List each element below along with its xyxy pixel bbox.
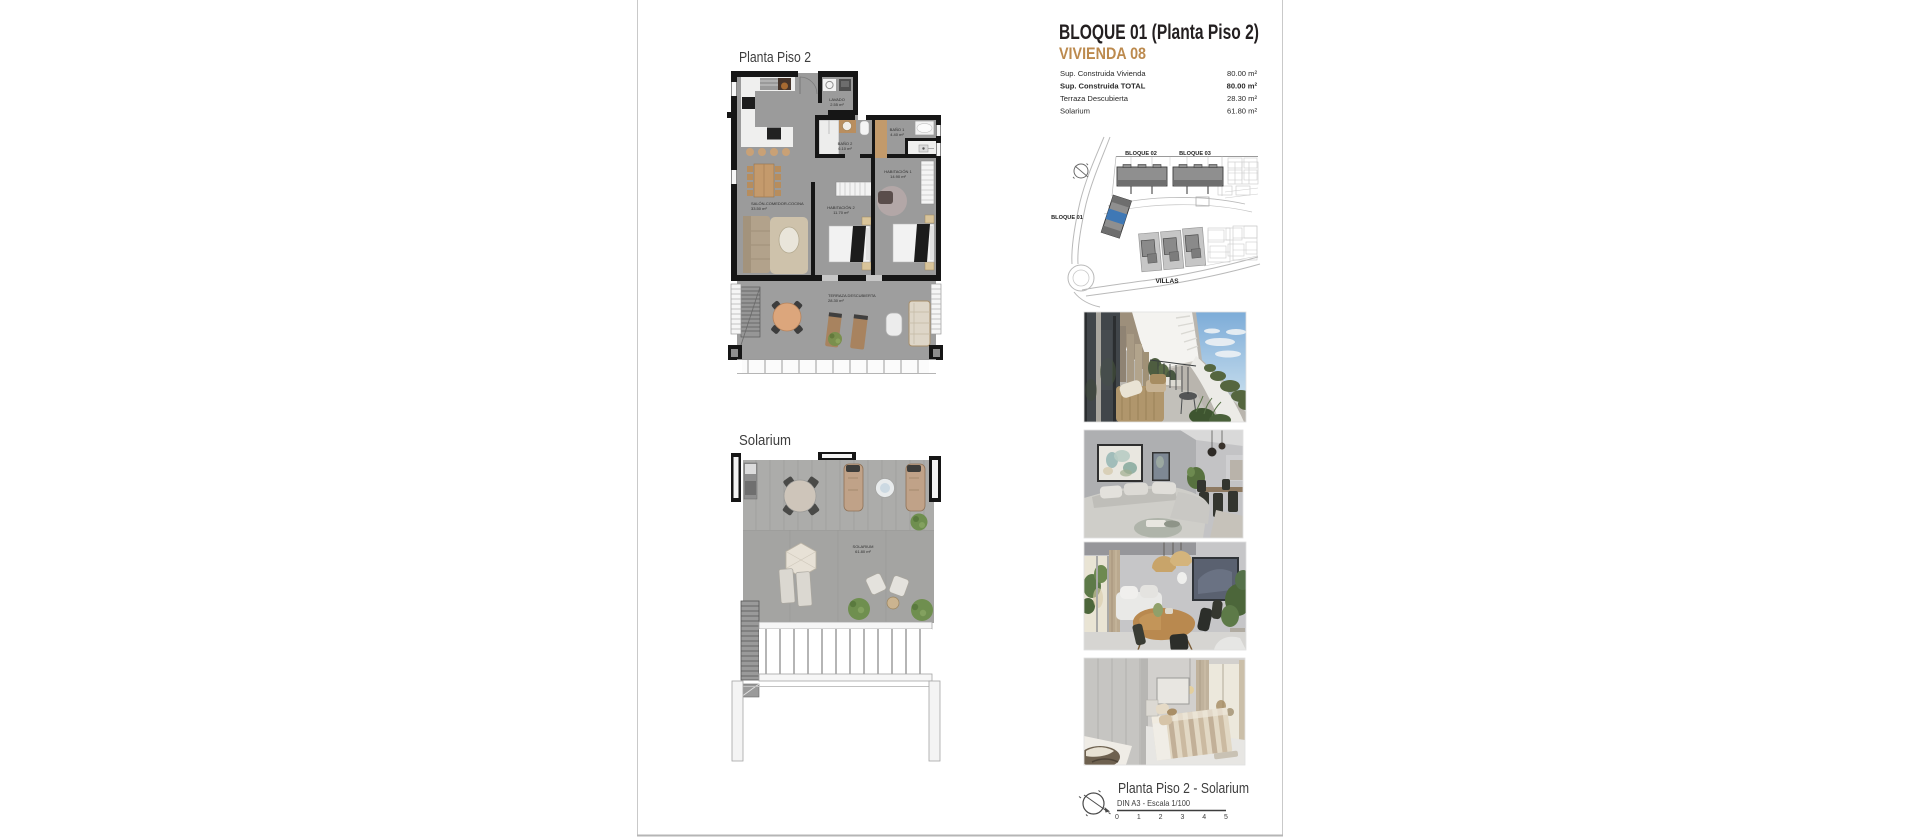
svg-text:80.00 m²: 80.00 m² xyxy=(1227,82,1258,91)
svg-text:2: 2 xyxy=(1159,814,1163,821)
svg-text:61.80 m²: 61.80 m² xyxy=(855,549,871,554)
svg-text:28.30 m²: 28.30 m² xyxy=(828,298,844,303)
svg-text:Planta Piso 2 - Solarium: Planta Piso 2 - Solarium xyxy=(1118,780,1249,797)
svg-text:0: 0 xyxy=(1115,814,1119,821)
svg-text:Terraza Descubierta: Terraza Descubierta xyxy=(1060,94,1129,103)
svg-text:6.10 m²: 6.10 m² xyxy=(838,146,852,151)
svg-text:Sup. Construida Vivienda: Sup. Construida Vivienda xyxy=(1060,69,1146,78)
svg-text:61.80 m²: 61.80 m² xyxy=(1227,107,1257,116)
svg-text:VIVIENDA 08: VIVIENDA 08 xyxy=(1059,44,1146,63)
svg-text:28.30 m²: 28.30 m² xyxy=(1227,94,1257,103)
svg-text:Solarium: Solarium xyxy=(1060,107,1090,116)
svg-text:80.00 m²: 80.00 m² xyxy=(1227,69,1257,78)
svg-text:BLOQUE 01 (Planta Piso 2): BLOQUE 01 (Planta Piso 2) xyxy=(1059,21,1259,44)
svg-text:11.70 m²: 11.70 m² xyxy=(833,210,849,215)
svg-text:Sup. Construida TOTAL: Sup. Construida TOTAL xyxy=(1060,82,1146,91)
svg-text:14.90 m²: 14.90 m² xyxy=(890,174,906,179)
svg-text:DIN A3 - Escala 1/100: DIN A3 - Escala 1/100 xyxy=(1117,798,1190,808)
svg-text:3: 3 xyxy=(1180,814,1184,821)
svg-text:5: 5 xyxy=(1224,814,1228,821)
svg-text:4: 4 xyxy=(1202,814,1206,821)
svg-text:Solarium: Solarium xyxy=(739,432,791,449)
svg-text:2.55 m²: 2.55 m² xyxy=(830,102,844,107)
svg-text:33.50 m²: 33.50 m² xyxy=(751,206,767,211)
svg-text:BLOQUE 02: BLOQUE 02 xyxy=(1125,151,1157,157)
svg-text:BLOQUE 03: BLOQUE 03 xyxy=(1179,151,1211,157)
svg-text:Planta Piso 2: Planta Piso 2 xyxy=(739,49,811,66)
svg-text:VILLAS: VILLAS xyxy=(1155,278,1179,285)
svg-text:4.40 m²: 4.40 m² xyxy=(890,132,904,137)
svg-text:BLOQUE 01: BLOQUE 01 xyxy=(1051,215,1083,221)
svg-text:1: 1 xyxy=(1137,814,1141,821)
